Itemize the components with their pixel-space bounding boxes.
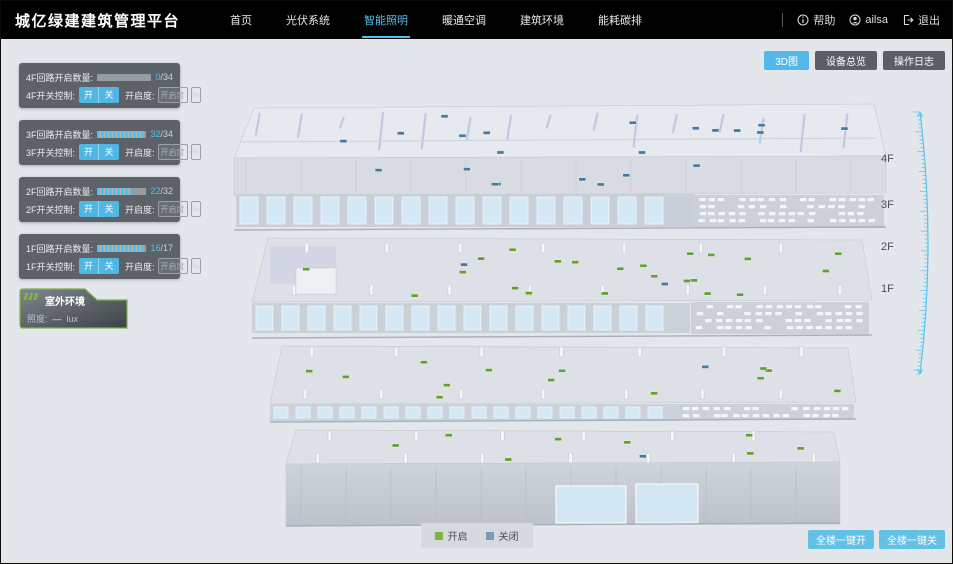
app-root: 城亿绿建建筑管理平台 首页 光伏系统 智能照明 暖通空调 建筑环境 能耗碳排 帮… — [0, 0, 953, 564]
percent-suffix: % — [191, 201, 201, 217]
legend-item-on: 开启 — [435, 528, 468, 543]
info-icon — [797, 14, 809, 26]
logout-button[interactable]: 退出 — [902, 12, 940, 28]
building-3d-view[interactable] — [226, 56, 898, 548]
dim-label: 开启度: — [125, 146, 155, 159]
circuit-progress-bar — [97, 245, 146, 252]
dim-label: 开启度: — [125, 203, 155, 216]
nav-item-smart-lighting[interactable]: 智能照明 — [362, 2, 410, 38]
floor-off-button[interactable]: 关 — [99, 258, 119, 274]
dim-label: 开启度: — [125, 260, 155, 273]
floor-on-button[interactable]: 开 — [79, 87, 99, 103]
all-off-button[interactable]: 全楼一键关 — [879, 530, 945, 549]
floor-scale-4f: 4F — [881, 153, 894, 165]
view-mode-buttons: 3D图 设备总览 操作日志 — [764, 51, 945, 70]
username: ailsa — [865, 14, 888, 26]
switch-control-label: 4F开关控制: — [26, 89, 75, 102]
percent-suffix: % — [191, 144, 201, 160]
user-icon — [849, 14, 861, 26]
switch-control-label: 2F开关控制: — [26, 203, 75, 216]
floor-on-button[interactable]: 开 — [79, 201, 99, 217]
circuit-progress-bar — [97, 131, 146, 138]
floor-off-button[interactable]: 关 — [99, 201, 119, 217]
circuit-count-value: 0/34 — [155, 72, 173, 82]
legend-item-off: 关闭 — [486, 528, 519, 543]
top-bar: 城亿绿建建筑管理平台 首页 光伏系统 智能照明 暖通空调 建筑环境 能耗碳排 帮… — [1, 1, 952, 39]
dim-input[interactable] — [158, 201, 188, 217]
percent-suffix: % — [191, 258, 201, 274]
all-on-button[interactable]: 全楼一键开 — [808, 530, 874, 549]
dim-input[interactable] — [158, 87, 188, 103]
floor-ruler-slider[interactable] — [913, 109, 943, 379]
ruler-icon — [913, 109, 943, 379]
circuit-progress-bar — [97, 74, 151, 81]
circuit-count-label: 4F回路开启数量: — [26, 71, 93, 84]
nav-item-home[interactable]: 首页 — [228, 2, 254, 38]
outdoor-panel-title: 室外环境 — [45, 293, 85, 308]
floor-off-button[interactable]: 关 — [99, 87, 119, 103]
nav-item-energy-carbon[interactable]: 能耗碳排 — [596, 2, 644, 38]
circuit-count-value: 22/32 — [150, 186, 173, 196]
lighting-legend: 开启 关闭 — [421, 523, 533, 548]
circuit-count-label: 3F回路开启数量: — [26, 128, 93, 141]
floor-on-button[interactable]: 开 — [79, 144, 99, 160]
legend-on-swatch — [435, 532, 443, 540]
nav-item-building-env[interactable]: 建筑环境 — [518, 2, 566, 38]
floor-scale-2f: 2F — [881, 241, 894, 253]
percent-suffix: % — [191, 87, 201, 103]
logout-icon — [902, 14, 914, 26]
circuit-count-value: 32/34 — [150, 129, 173, 139]
circuit-count-value: 16/17 — [150, 243, 173, 253]
floor-scale-1f: 1F — [881, 283, 894, 295]
floor-scale-3f: 3F — [881, 199, 894, 211]
circuit-count-label: 1F回路开启数量: — [26, 242, 93, 255]
bulk-control-buttons: 全楼一键开 全楼一键关 — [808, 530, 945, 549]
nav-item-pv-system[interactable]: 光伏系统 — [284, 2, 332, 38]
dim-input[interactable] — [158, 258, 188, 274]
app-title: 城亿绿建建筑管理平台 — [15, 10, 180, 31]
nav-item-hvac[interactable]: 暖通空调 — [440, 2, 488, 38]
header-divider — [782, 13, 783, 27]
help-button[interactable]: 帮助 — [797, 12, 835, 28]
top-bar-right: 帮助 ailsa 退出 — [782, 12, 940, 28]
panel-floor-2f: 2F回路开启数量: 22/32 2F开关控制: 开 关 开启度: % — [19, 177, 180, 222]
circuit-progress-bar — [97, 188, 146, 195]
switch-control-label: 1F开关控制: — [26, 260, 75, 273]
dim-input[interactable] — [158, 144, 188, 160]
illuminance-readout: 照度: — lux — [27, 312, 78, 325]
panel-floor-4f: 4F回路开启数量: 0/34 4F开关控制: 开 关 开启度: % — [19, 63, 180, 108]
floor-on-button[interactable]: 开 — [79, 258, 99, 274]
panel-floor-1f: 1F回路开启数量: 16/17 1F开关控制: 开 关 开启度: % — [19, 234, 180, 279]
panel-outdoor-env: 室外环境 照度: — lux — [19, 288, 129, 330]
floor-off-button[interactable]: 关 — [99, 144, 119, 160]
switch-control-label: 3F开关控制: — [26, 146, 75, 159]
operation-log-button[interactable]: 操作日志 — [883, 51, 945, 70]
env-slashes-icon — [23, 293, 38, 300]
dim-label: 开启度: — [125, 89, 155, 102]
circuit-count-label: 2F回路开启数量: — [26, 185, 93, 198]
user-menu[interactable]: ailsa — [849, 14, 888, 26]
panel-floor-3f: 3F回路开启数量: 32/34 3F开关控制: 开 关 开启度: % — [19, 120, 180, 165]
main-nav: 首页 光伏系统 智能照明 暖通空调 建筑环境 能耗碳排 — [228, 2, 644, 38]
legend-off-swatch — [486, 532, 494, 540]
device-overview-button[interactable]: 设备总览 — [815, 51, 877, 70]
view-3d-button[interactable]: 3D图 — [764, 51, 809, 70]
